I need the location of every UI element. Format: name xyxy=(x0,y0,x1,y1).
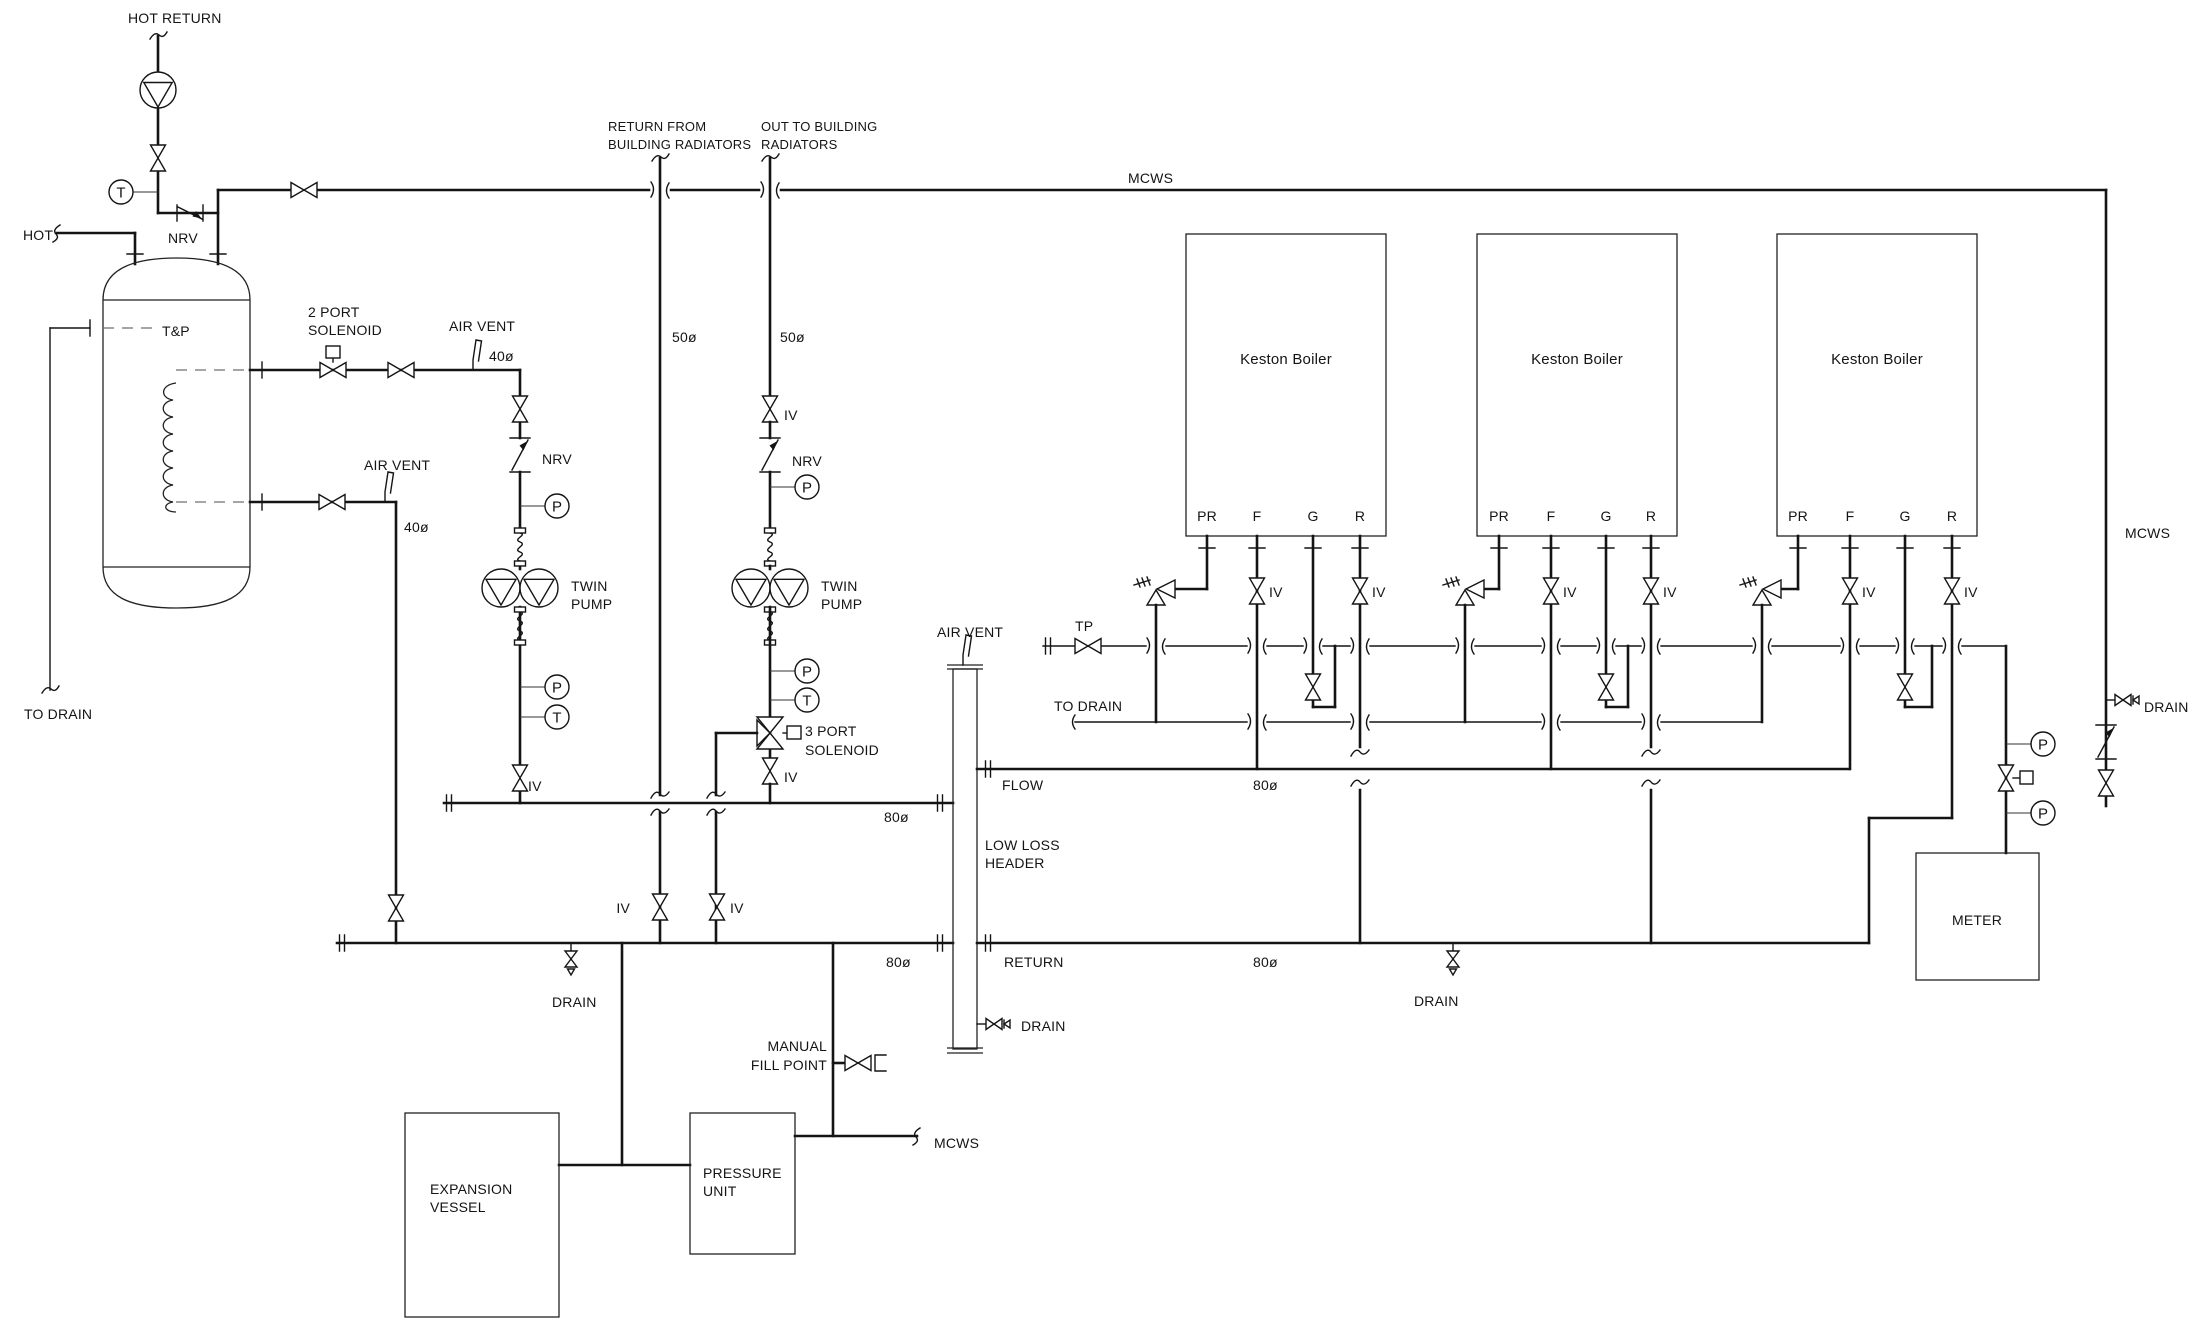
svg-text:TP: TP xyxy=(1075,618,1093,634)
svg-text:TWIN: TWIN xyxy=(821,578,858,594)
svg-text:PRESSURE: PRESSURE xyxy=(703,1165,782,1181)
svg-text:IV: IV xyxy=(730,900,744,916)
svg-text:IV: IV xyxy=(1372,584,1386,600)
svg-text:MCWS: MCWS xyxy=(1128,170,1173,186)
svg-text:Keston Boiler: Keston Boiler xyxy=(1831,351,1923,368)
svg-text:SOLENOID: SOLENOID xyxy=(805,742,879,758)
svg-text:80ø: 80ø xyxy=(886,954,911,970)
svg-text:MCWS: MCWS xyxy=(2125,525,2170,541)
svg-text:AIR VENT: AIR VENT xyxy=(364,457,430,473)
svg-text:40ø: 40ø xyxy=(489,348,514,364)
svg-text:DRAIN: DRAIN xyxy=(1414,993,1459,1009)
svg-text:FILL POINT: FILL POINT xyxy=(751,1057,827,1073)
svg-text:T&P: T&P xyxy=(162,323,190,339)
svg-text:TO DRAIN: TO DRAIN xyxy=(1054,698,1122,714)
svg-text:IV: IV xyxy=(784,769,798,785)
svg-text:AIR VENT: AIR VENT xyxy=(449,318,515,334)
svg-text:40ø: 40ø xyxy=(404,519,429,535)
svg-text:IV: IV xyxy=(1663,584,1677,600)
svg-text:EXPANSION: EXPANSION xyxy=(430,1181,512,1197)
svg-text:IV: IV xyxy=(784,407,798,423)
svg-text:80ø: 80ø xyxy=(1253,777,1278,793)
svg-text:50ø: 50ø xyxy=(780,329,805,345)
svg-text:VESSEL: VESSEL xyxy=(430,1199,486,1215)
svg-text:80ø: 80ø xyxy=(884,809,909,825)
svg-text:METER: METER xyxy=(1952,912,2002,928)
svg-text:DRAIN: DRAIN xyxy=(552,994,597,1010)
svg-text:NRV: NRV xyxy=(542,451,572,467)
svg-text:G: G xyxy=(1899,508,1910,524)
svg-text:80ø: 80ø xyxy=(1253,954,1278,970)
svg-text:IV: IV xyxy=(616,900,630,916)
svg-text:G: G xyxy=(1307,508,1318,524)
svg-text:R: R xyxy=(1355,508,1365,524)
svg-text:RETURN: RETURN xyxy=(1004,954,1064,970)
svg-text:IV: IV xyxy=(1563,584,1577,600)
svg-text:NRV: NRV xyxy=(792,453,822,469)
svg-text:DRAIN: DRAIN xyxy=(2144,699,2189,715)
svg-text:R: R xyxy=(1646,508,1656,524)
svg-text:2 PORT: 2 PORT xyxy=(308,304,360,320)
svg-text:G: G xyxy=(1600,508,1611,524)
svg-text:PR: PR xyxy=(1788,508,1808,524)
svg-text:R: R xyxy=(1947,508,1957,524)
svg-text:RADIATORS: RADIATORS xyxy=(761,137,838,152)
svg-text:UNIT: UNIT xyxy=(703,1183,737,1199)
svg-text:SOLENOID: SOLENOID xyxy=(308,322,382,338)
svg-text:F: F xyxy=(1846,508,1855,524)
svg-text:50ø: 50ø xyxy=(672,329,697,345)
svg-text:NRV: NRV xyxy=(168,230,198,246)
svg-text:PR: PR xyxy=(1489,508,1509,524)
svg-text:IV: IV xyxy=(1862,584,1876,600)
svg-text:DRAIN: DRAIN xyxy=(1021,1018,1066,1034)
svg-text:RETURN FROM: RETURN FROM xyxy=(608,119,706,134)
svg-text:HOT RETURN: HOT RETURN xyxy=(128,10,222,26)
svg-text:BUILDING RADIATORS: BUILDING RADIATORS xyxy=(608,137,751,152)
svg-text:HOT: HOT xyxy=(23,227,53,243)
svg-text:Keston Boiler: Keston Boiler xyxy=(1240,351,1332,368)
svg-text:3 PORT: 3 PORT xyxy=(805,723,857,739)
svg-text:IV: IV xyxy=(528,778,542,794)
svg-text:Keston Boiler: Keston Boiler xyxy=(1531,351,1623,368)
svg-text:PUMP: PUMP xyxy=(821,596,862,612)
svg-text:TO DRAIN: TO DRAIN xyxy=(24,706,92,722)
svg-text:TWIN: TWIN xyxy=(571,578,608,594)
svg-text:F: F xyxy=(1253,508,1262,524)
svg-text:AIR VENT: AIR VENT xyxy=(937,624,1003,640)
svg-text:F: F xyxy=(1547,508,1556,524)
svg-text:LOW LOSS: LOW LOSS xyxy=(985,837,1060,853)
svg-text:IV: IV xyxy=(1964,584,1978,600)
svg-text:IV: IV xyxy=(1269,584,1283,600)
svg-text:MCWS: MCWS xyxy=(934,1135,979,1151)
svg-text:PUMP: PUMP xyxy=(571,596,612,612)
svg-text:PR: PR xyxy=(1197,508,1217,524)
svg-text:FLOW: FLOW xyxy=(1002,777,1044,793)
svg-text:OUT TO BUILDING: OUT TO BUILDING xyxy=(761,119,877,134)
svg-text:HEADER: HEADER xyxy=(985,855,1045,871)
svg-text:MANUAL: MANUAL xyxy=(767,1038,827,1054)
